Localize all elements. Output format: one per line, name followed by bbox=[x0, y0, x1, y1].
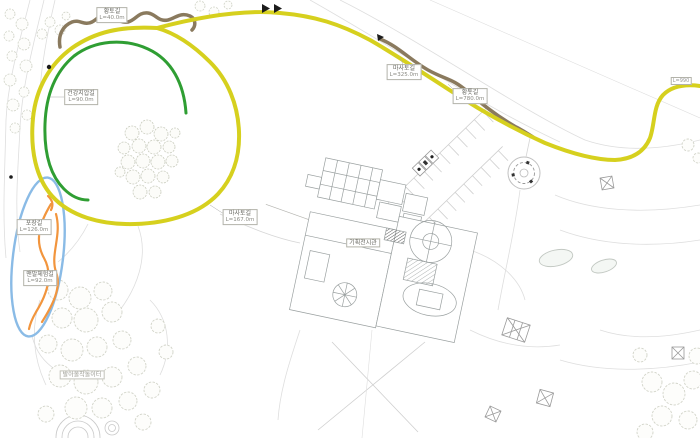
map-canvas bbox=[0, 0, 700, 438]
hut-4 bbox=[485, 406, 501, 422]
edge-length-label: L=990 bbox=[671, 77, 692, 85]
poi-marker bbox=[9, 175, 13, 179]
roundabout bbox=[508, 138, 540, 189]
accessible-parking-stalls bbox=[412, 150, 438, 176]
pergola bbox=[502, 318, 530, 343]
tree-cluster-loop-interior bbox=[115, 120, 180, 199]
pond-east bbox=[590, 256, 618, 275]
trail-label-paved: 포장길 L=126.0m bbox=[17, 219, 52, 235]
amphitheater-rings bbox=[56, 415, 119, 438]
ponds bbox=[538, 247, 619, 276]
poi-marker bbox=[47, 65, 51, 69]
playground-label: 발아올작놀이터 bbox=[60, 370, 105, 379]
tree-cluster-southeast bbox=[633, 139, 700, 438]
hut-3 bbox=[672, 347, 684, 359]
hut-2 bbox=[600, 176, 614, 190]
trail-label-masato-short: 마사토길 L=167.0m bbox=[223, 209, 258, 225]
trail-label-acupressure: 건강지압길 L=90.0m bbox=[64, 89, 98, 105]
trail-orange bbox=[29, 196, 58, 329]
trail-label-hwangtot: 황톳길 L=780.0m bbox=[453, 88, 488, 104]
trail-label-hwangto: 황토길 L=40.0m bbox=[96, 7, 127, 23]
site-plan-map: 황토길 L=40.0m 마사토길 L=325.0m 황톳길 L=780.0m 건… bbox=[0, 0, 700, 438]
exhibition-hall-label: 기획전시관 bbox=[346, 238, 380, 247]
hut-1 bbox=[536, 389, 553, 406]
pond-west bbox=[538, 247, 575, 270]
trail-label-barefoot: 맨발체험길 L=92.0m bbox=[23, 270, 57, 286]
trail-label-masato-long: 마사토길 L=325.0m bbox=[387, 64, 422, 80]
